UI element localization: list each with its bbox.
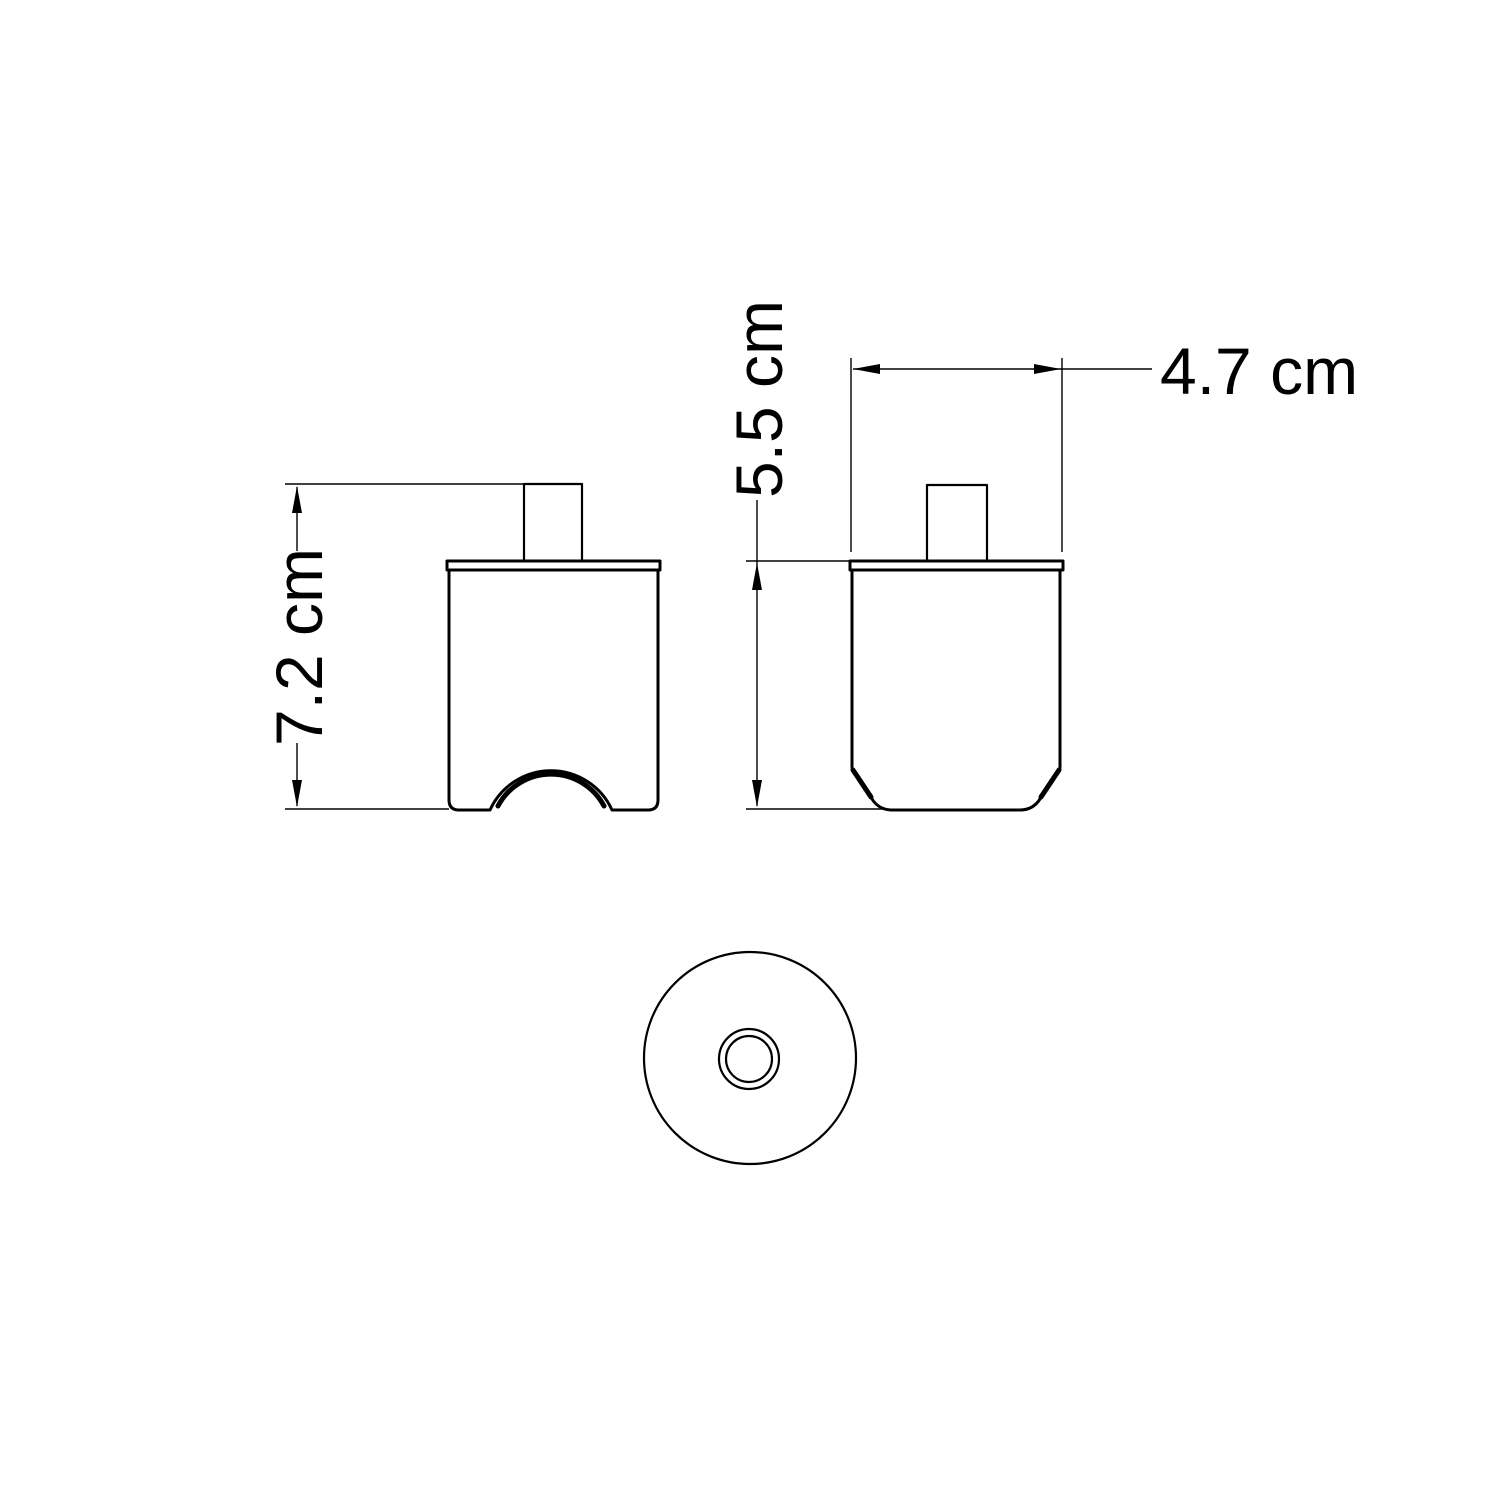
side-view: [850, 485, 1063, 810]
arrowhead-down-icon: [752, 780, 762, 807]
side-stem: [927, 485, 987, 561]
arrowhead-down-icon: [292, 780, 302, 807]
side-body: [852, 570, 1060, 810]
dimension-label-total-height: 7.2 cm: [262, 548, 336, 746]
arrowhead-right-icon: [1034, 364, 1061, 374]
top-view: [644, 952, 856, 1164]
arrowhead-up-icon: [752, 563, 762, 590]
front-view: [447, 484, 660, 810]
arrowhead-up-icon: [292, 486, 302, 513]
dimension-drawing-svg: 7.2 cm 5.5 cm 4.7 cm: [0, 0, 1500, 1500]
technical-drawing-canvas: 7.2 cm 5.5 cm 4.7 cm: [0, 0, 1500, 1500]
front-stem: [524, 484, 582, 561]
dimension-label-top-width: 4.7 cm: [1160, 334, 1358, 408]
top-outer-circle: [644, 952, 856, 1164]
dimension-label-body-height: 5.5 cm: [722, 300, 796, 498]
arrowhead-left-icon: [853, 364, 880, 374]
